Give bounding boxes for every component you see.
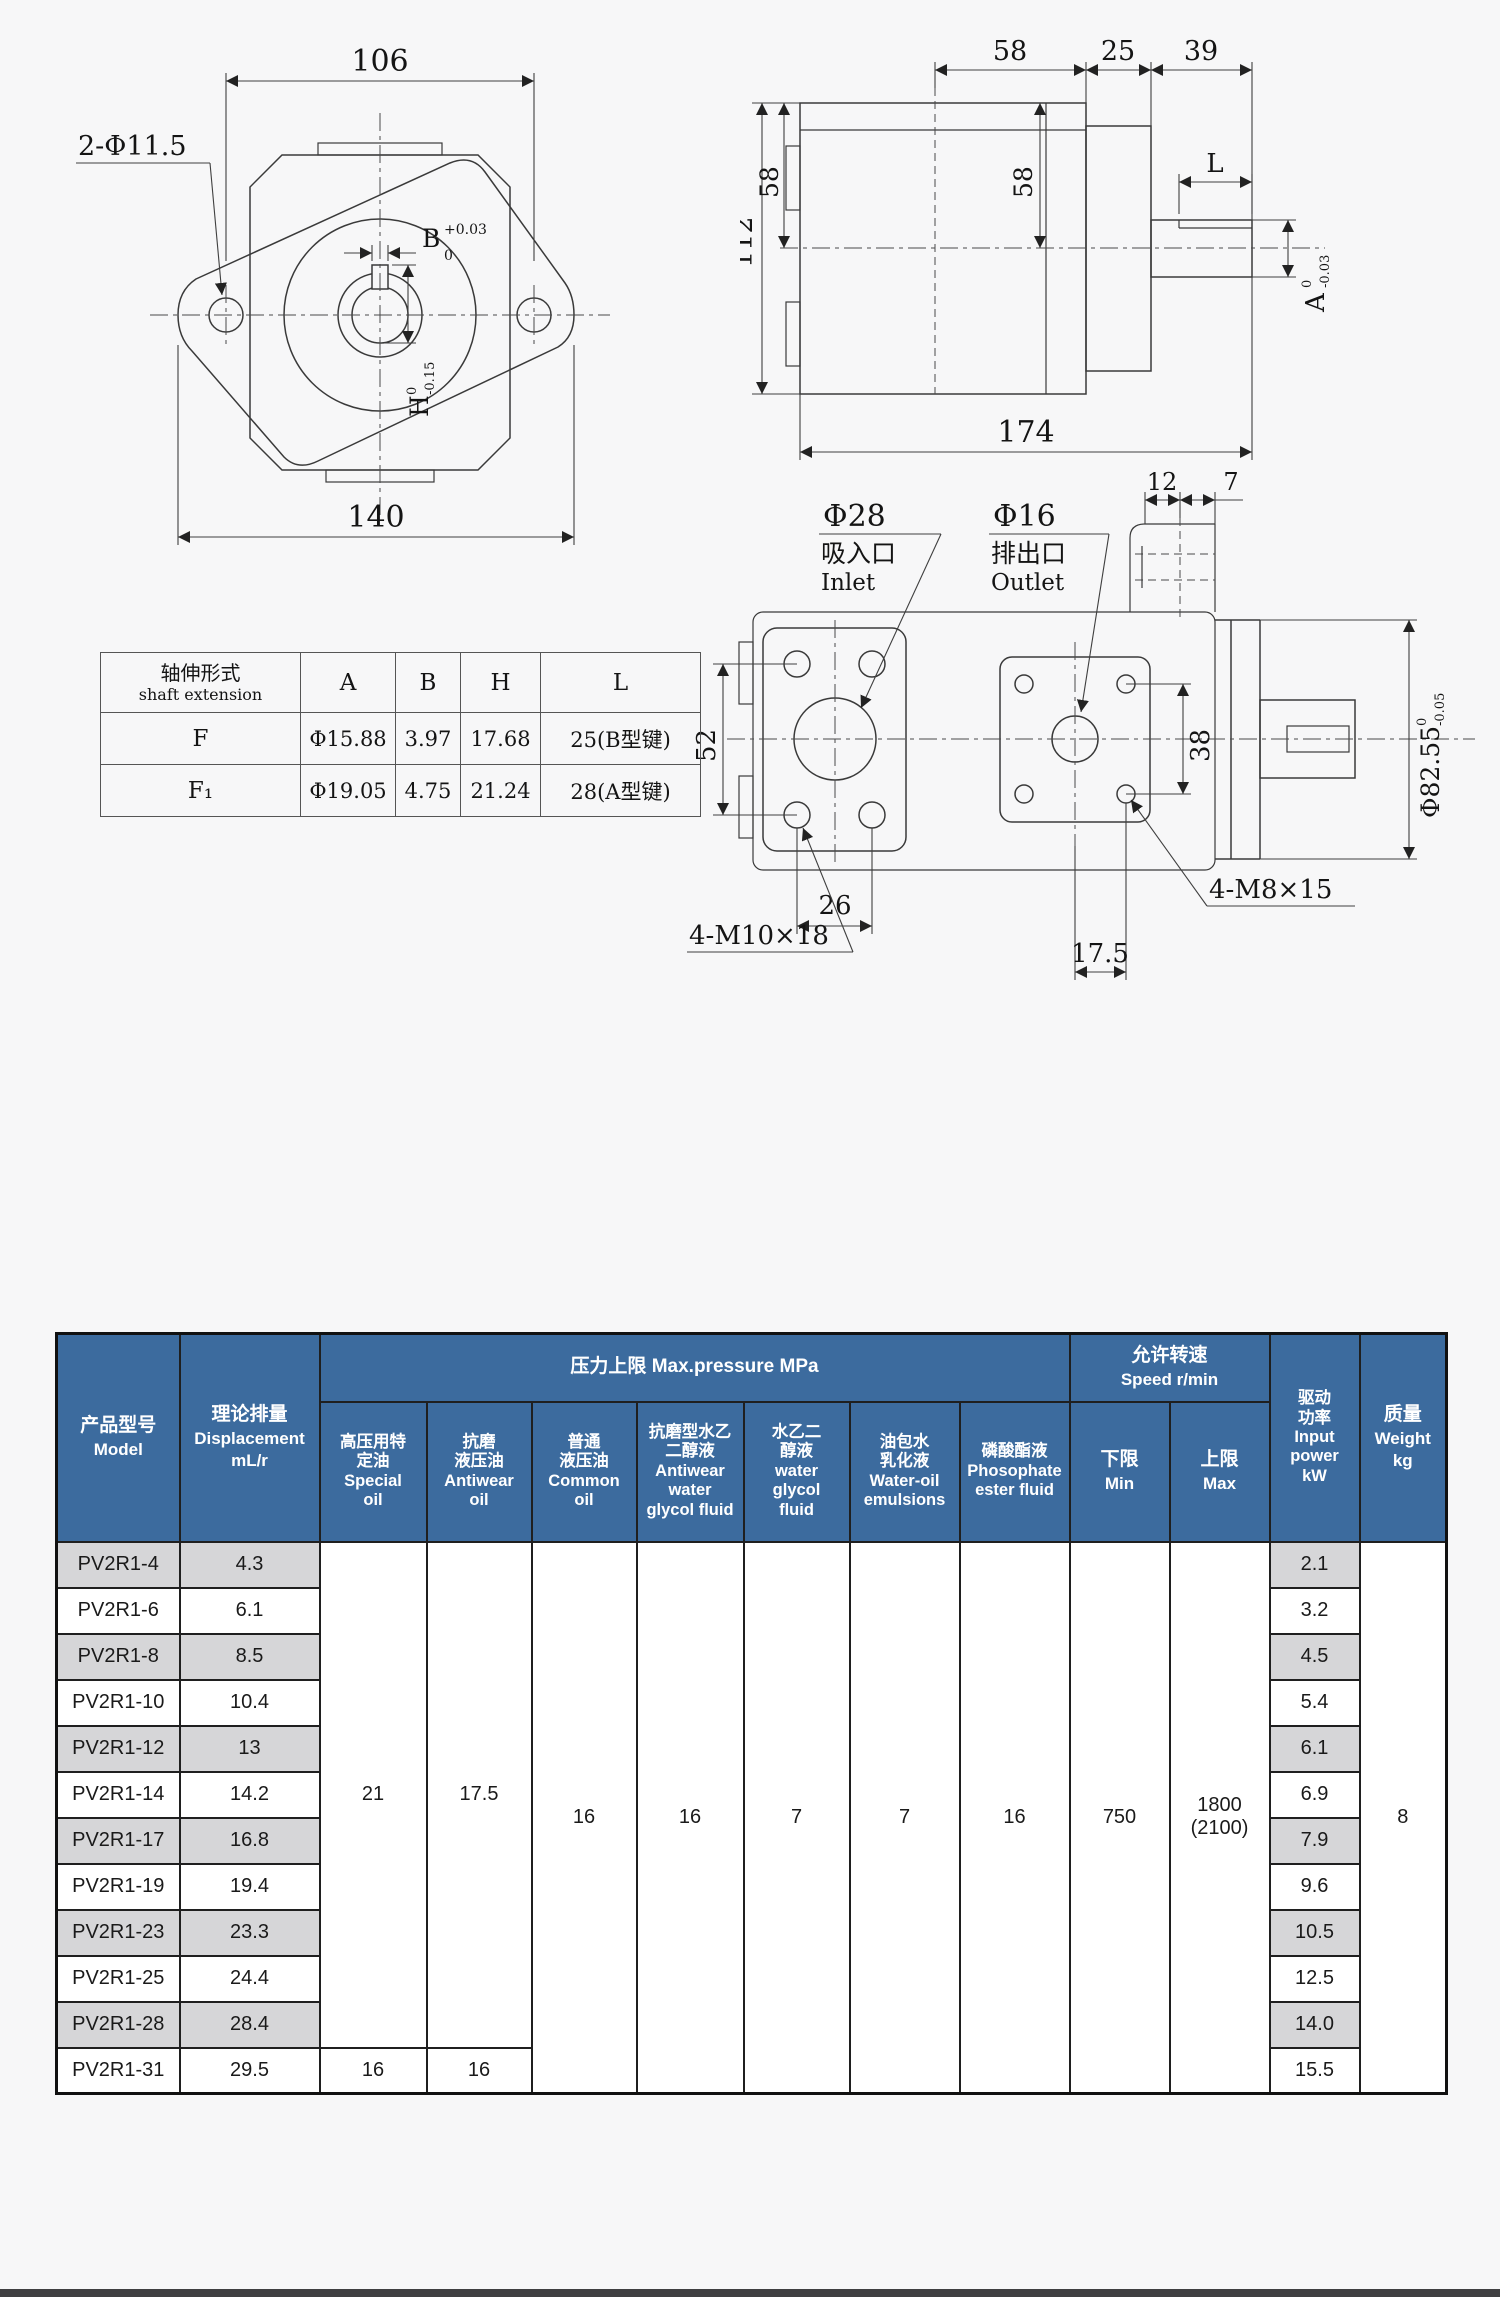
inlet-zh-label: 吸入口 bbox=[821, 540, 896, 568]
shaft-col-a: A bbox=[301, 653, 396, 713]
svg-text:Φ82.55: Φ82.55 bbox=[1416, 726, 1445, 818]
label-mount-holes: 2-Φ11.5 bbox=[78, 131, 187, 162]
svg-text:-0.15: -0.15 bbox=[423, 362, 438, 395]
dim-keyway-b-lower: 0 bbox=[444, 248, 453, 264]
outlet-en-label: Outlet bbox=[991, 570, 1065, 596]
svg-text:58: 58 bbox=[1009, 166, 1038, 198]
shaft-col-h: H bbox=[461, 653, 541, 713]
displacement-cell: 10.4 bbox=[180, 1680, 320, 1726]
spec-table: 产品型号 Model 理论排量 Displacement mL/r 压力上限 M… bbox=[55, 1332, 1448, 2095]
spec-row: PV2R1-4 4.3 21 17.5 16 16 7 7 16 750 180… bbox=[57, 1542, 1447, 1588]
page-bottom-edge bbox=[0, 2289, 1500, 2297]
power-cell: 4.5 bbox=[1270, 1634, 1360, 1680]
svg-text:38: 38 bbox=[1186, 729, 1216, 762]
spec-header-phosphate: 磷酸酯液 Phosophate ester fluid bbox=[960, 1402, 1070, 1542]
power-cell: 7.9 bbox=[1270, 1818, 1360, 1864]
displacement-cell: 28.4 bbox=[180, 2002, 320, 2048]
power-cell: 12.5 bbox=[1270, 1956, 1360, 2002]
dim-58-inner: 58 bbox=[1009, 166, 1038, 198]
power-cell: 10.5 bbox=[1270, 1910, 1360, 1956]
model-cell: PV2R1-10 bbox=[57, 1680, 180, 1726]
weight-value: 8 bbox=[1360, 1542, 1447, 2094]
outlet-dia-label: Φ16 bbox=[993, 499, 1056, 534]
svg-text:A: A bbox=[1301, 292, 1331, 313]
spec-header-antiwear-glycol: 抗磨型水乙 二醇液 Antiwear water glycol fluid bbox=[637, 1402, 744, 1542]
spec-header-speed-group: 允许转速 Speed r/min bbox=[1070, 1334, 1270, 1402]
model-cell: PV2R1-4 bbox=[57, 1542, 180, 1588]
model-cell: PV2R1-12 bbox=[57, 1726, 180, 1772]
special-oil-value: 21 bbox=[320, 1542, 427, 2048]
front-flange-outline bbox=[178, 160, 574, 465]
special-oil-last-row-value: 16 bbox=[320, 2048, 427, 2094]
inlet-bolt-hole bbox=[859, 802, 885, 828]
displacement-cell: 16.8 bbox=[180, 1818, 320, 1864]
common-oil-value: 16 bbox=[532, 1542, 637, 2094]
shaft-col-b: B bbox=[396, 653, 461, 713]
dim-38: 38 bbox=[1186, 729, 1216, 762]
displacement-cell: 13 bbox=[180, 1726, 320, 1772]
shaft-row-f1: F₁ Φ19.05 4.75 21.24 28(A型键) bbox=[101, 765, 701, 817]
model-cell: PV2R1-25 bbox=[57, 1956, 180, 2002]
model-cell: PV2R1-6 bbox=[57, 1588, 180, 1634]
svg-text:58: 58 bbox=[755, 166, 784, 198]
spec-header-row-1: 产品型号 Model 理论排量 Displacement mL/r 压力上限 M… bbox=[57, 1334, 1447, 1402]
dim-58-top: 58 bbox=[993, 36, 1027, 67]
port-boss-left-top bbox=[739, 642, 753, 704]
displacement-cell: 23.3 bbox=[180, 1910, 320, 1956]
dim-keyway-h: H 0 -0.15 bbox=[405, 362, 438, 417]
water-oil-value: 7 bbox=[850, 1542, 960, 2094]
power-cell: 6.9 bbox=[1270, 1772, 1360, 1818]
front-view-drawing: 106 140 2-Φ11.5 B +0.03 0 H 0 -0.15 bbox=[60, 15, 700, 590]
svg-text:H: H bbox=[405, 395, 434, 417]
port-body-outline bbox=[753, 612, 1215, 870]
model-cell: PV2R1-23 bbox=[57, 1910, 180, 1956]
shaft-table-header-row: 轴伸形式 shaft extension A B H L bbox=[101, 653, 701, 713]
dim-12: 12 bbox=[1147, 468, 1178, 496]
inlet-dia-label: Φ28 bbox=[823, 499, 886, 534]
power-cell: 6.1 bbox=[1270, 1726, 1360, 1772]
svg-text:0: 0 bbox=[405, 387, 420, 395]
displacement-cell: 14.2 bbox=[180, 1772, 320, 1818]
side-port-boss-top bbox=[786, 146, 800, 210]
speed-min-value: 750 bbox=[1070, 1542, 1170, 2094]
power-cell: 14.0 bbox=[1270, 2002, 1360, 2048]
spec-header-common-oil: 普通 液压油 Common oil bbox=[532, 1402, 637, 1542]
svg-text:0: 0 bbox=[1300, 280, 1315, 288]
inlet-en-label: Inlet bbox=[821, 570, 876, 596]
outlet-bolt-hole bbox=[1015, 675, 1033, 693]
model-cell: PV2R1-19 bbox=[57, 1864, 180, 1910]
dim-39: 39 bbox=[1184, 36, 1218, 67]
dim-17-5: 17.5 bbox=[1071, 939, 1129, 969]
m10-thread-label: 4-M10×18 bbox=[689, 921, 829, 951]
port-view-drawing: 12 7 52 26 17.5 38 Φ82.55 0 -0.05 bbox=[675, 462, 1500, 1020]
dim-174: 174 bbox=[997, 415, 1054, 450]
model-cell: PV2R1-28 bbox=[57, 2002, 180, 2048]
shaft-table-title: 轴伸形式 shaft extension bbox=[101, 653, 301, 713]
spec-header-max: 上限 Max bbox=[1170, 1402, 1270, 1542]
outlet-bolt-hole bbox=[1015, 785, 1033, 803]
power-cell: 5.4 bbox=[1270, 1680, 1360, 1726]
dim-L: L bbox=[1206, 149, 1223, 179]
dim-106: 106 bbox=[351, 44, 408, 79]
antiwear-oil-value: 17.5 bbox=[427, 1542, 532, 2048]
dim-7: 7 bbox=[1223, 468, 1238, 496]
model-cell: PV2R1-14 bbox=[57, 1772, 180, 1818]
spec-header-water-oil: 油包水 乳化液 Water-oil emulsions bbox=[850, 1402, 960, 1542]
spec-header-water-glycol: 水乙二 醇液 water glycol fluid bbox=[744, 1402, 850, 1542]
displacement-cell: 24.4 bbox=[180, 1956, 320, 2002]
displacement-cell: 29.5 bbox=[180, 2048, 320, 2094]
dim-keyway-b: B bbox=[422, 224, 440, 253]
datasheet-page: 106 140 2-Φ11.5 B +0.03 0 H 0 -0.15 bbox=[0, 0, 1500, 2297]
antiwear-glycol-value: 16 bbox=[637, 1542, 744, 2094]
spec-header-power: 驱动 功率 Input power kW bbox=[1270, 1334, 1360, 1542]
model-cell: PV2R1-8 bbox=[57, 1634, 180, 1680]
displacement-cell: 19.4 bbox=[180, 1864, 320, 1910]
spec-header-antiwear-oil: 抗磨 液压油 Antiwear oil bbox=[427, 1402, 532, 1542]
dim-shaft-a: A 0 -0.03 bbox=[1300, 255, 1333, 313]
dim-58-left: 58 bbox=[755, 166, 784, 198]
svg-text:-0.03: -0.03 bbox=[1318, 255, 1333, 288]
svg-text:-0.05: -0.05 bbox=[1433, 693, 1448, 726]
spec-header-min: 下限 Min bbox=[1070, 1402, 1170, 1542]
displacement-cell: 8.5 bbox=[180, 1634, 320, 1680]
water-glycol-value: 7 bbox=[744, 1542, 850, 2094]
model-cell: PV2R1-31 bbox=[57, 2048, 180, 2094]
dim-keyway-b-upper: +0.03 bbox=[444, 222, 487, 238]
power-cell: 9.6 bbox=[1270, 1864, 1360, 1910]
spec-header-weight: 质量 Weight kg bbox=[1360, 1334, 1447, 1542]
svg-text:112: 112 bbox=[740, 216, 759, 268]
speed-max-value: 1800 (2100) bbox=[1170, 1542, 1270, 2094]
spec-header-displacement: 理论排量 Displacement mL/r bbox=[180, 1334, 320, 1542]
spec-header-special-oil: 高压用特 定油 Special oil bbox=[320, 1402, 427, 1542]
antiwear-oil-last-row-value: 16 bbox=[427, 2048, 532, 2094]
spec-header-model: 产品型号 Model bbox=[57, 1334, 180, 1542]
svg-text:0: 0 bbox=[1415, 718, 1430, 726]
dim-25: 25 bbox=[1101, 36, 1135, 67]
model-cell: PV2R1-17 bbox=[57, 1818, 180, 1864]
power-cell: 2.1 bbox=[1270, 1542, 1360, 1588]
shaft-extension-table: 轴伸形式 shaft extension A B H L F Φ15.88 3.… bbox=[100, 652, 701, 817]
port-top-tab bbox=[1130, 524, 1215, 612]
displacement-cell: 6.1 bbox=[180, 1588, 320, 1634]
shaft-col-l: L bbox=[541, 653, 701, 713]
port-boss-left-bottom bbox=[739, 776, 753, 838]
dim-spigot: Φ82.55 0 -0.05 bbox=[1415, 693, 1448, 818]
outlet-zh-label: 排出口 bbox=[991, 540, 1066, 568]
dim-112: 112 bbox=[740, 216, 759, 268]
power-cell: 3.2 bbox=[1270, 1588, 1360, 1634]
shaft-row-f: F Φ15.88 3.97 17.68 25(B型键) bbox=[101, 713, 701, 765]
displacement-cell: 4.3 bbox=[180, 1542, 320, 1588]
power-cell: 15.5 bbox=[1270, 2048, 1360, 2094]
side-port-boss-bottom bbox=[786, 302, 800, 366]
m8-thread-label: 4-M8×15 bbox=[1209, 875, 1332, 905]
dim-140: 140 bbox=[347, 500, 404, 535]
phosphate-value: 16 bbox=[960, 1542, 1070, 2094]
spec-header-pressure-group: 压力上限 Max.pressure MPa bbox=[320, 1334, 1070, 1402]
